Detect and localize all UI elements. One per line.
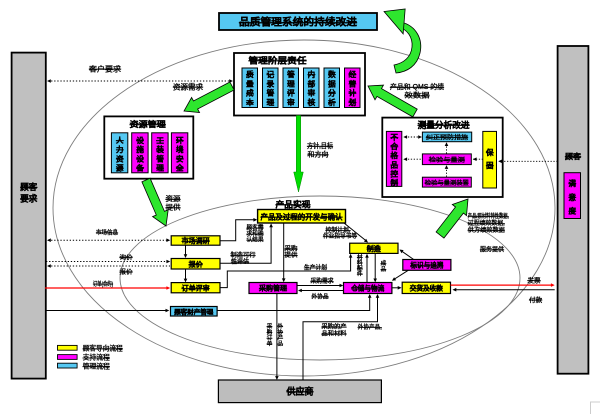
svg-text:经: 经 xyxy=(349,69,357,79)
svg-text:采购: 采购 xyxy=(285,245,298,253)
svg-text:产: 产 xyxy=(277,334,283,342)
svg-text:格: 格 xyxy=(391,150,399,160)
svg-text:交货及收款: 交货及收款 xyxy=(410,283,444,292)
svg-text:人: 人 xyxy=(116,136,124,145)
svg-text:分: 分 xyxy=(328,88,336,98)
svg-text:划: 划 xyxy=(349,97,357,107)
svg-text:顾客: 顾客 xyxy=(565,151,582,161)
svg-text:效数据: 效数据 xyxy=(405,91,430,100)
svg-text:单: 单 xyxy=(267,339,273,347)
svg-text:固: 固 xyxy=(486,161,494,170)
svg-text:制: 制 xyxy=(391,178,399,188)
svg-text:过程绩效数据,: 过程绩效数据, xyxy=(468,219,505,227)
svg-text:部: 部 xyxy=(308,78,316,88)
svg-text:评: 评 xyxy=(287,89,295,98)
svg-text:据: 据 xyxy=(328,78,336,88)
svg-text:意: 意 xyxy=(569,192,577,202)
svg-text:提供: 提供 xyxy=(285,251,298,259)
svg-text:资源需求: 资源需求 xyxy=(173,83,203,92)
svg-text:求和确: 求和确 xyxy=(247,230,264,238)
svg-text:安: 安 xyxy=(176,153,184,163)
svg-text:析: 析 xyxy=(328,97,336,107)
svg-text:顾客需: 顾客需 xyxy=(247,224,264,232)
svg-text:作业指导书等: 作业指导书等 xyxy=(323,232,357,240)
svg-text:境: 境 xyxy=(176,144,184,154)
svg-text:设: 设 xyxy=(136,135,144,145)
svg-text:外协产品,: 外协产品, xyxy=(358,323,382,331)
svg-text:报价: 报价 xyxy=(120,268,133,276)
svg-text:理: 理 xyxy=(156,164,164,173)
svg-text:件: 件 xyxy=(357,270,363,278)
svg-text:理: 理 xyxy=(287,79,295,88)
svg-text:记: 记 xyxy=(267,69,275,79)
svg-text:供方绩效数据: 供方绩效数据 xyxy=(468,226,505,234)
svg-text:源: 源 xyxy=(116,163,124,173)
svg-text:顾客财产管理: 顾客财产管理 xyxy=(174,307,214,316)
svg-text:仓储与物流: 仓储与物流 xyxy=(350,284,384,293)
svg-text:数: 数 xyxy=(328,69,336,79)
svg-text:度: 度 xyxy=(569,206,577,216)
svg-text:审: 审 xyxy=(287,97,295,107)
svg-text:纠正预防措施: 纠正预防措施 xyxy=(426,133,468,141)
svg-text:资: 资 xyxy=(116,153,124,163)
svg-text:管: 管 xyxy=(156,153,164,163)
svg-text:检验与量测: 检验与量测 xyxy=(429,156,465,164)
svg-text:控: 控 xyxy=(391,168,399,178)
svg-text:产品和 QMS 的绩: 产品和 QMS 的绩 xyxy=(390,82,444,91)
svg-text:外: 外 xyxy=(277,322,283,330)
svg-text:发票: 发票 xyxy=(528,275,542,284)
svg-text:设: 设 xyxy=(136,153,144,163)
svg-text:制造可行: 制造可行 xyxy=(231,251,256,259)
svg-text:营: 营 xyxy=(349,78,357,88)
svg-text:供应商: 供应商 xyxy=(286,386,314,397)
svg-text:采购需求: 采购需求 xyxy=(311,277,334,285)
svg-text:本: 本 xyxy=(245,97,254,107)
svg-text:产品实现: 产品实现 xyxy=(276,200,311,210)
svg-text:产品/原材料特性数据,: 产品/原材料特性数据, xyxy=(468,212,509,220)
svg-text:不: 不 xyxy=(391,133,399,142)
svg-text:付款: 付款 xyxy=(529,295,543,304)
svg-text:市场信息: 市场信息 xyxy=(96,229,118,237)
svg-text:和方向: 和方向 xyxy=(308,150,329,159)
svg-text:要求: 要求 xyxy=(20,194,37,204)
svg-text:内: 内 xyxy=(308,69,316,79)
svg-text:支持流程: 支持流程 xyxy=(83,353,110,362)
svg-text:录: 录 xyxy=(267,79,275,88)
svg-text:顾客: 顾客 xyxy=(20,182,37,192)
svg-text:购: 购 xyxy=(267,328,273,336)
svg-text:标识与追溯: 标识与追溯 xyxy=(409,261,443,270)
svg-text:满: 满 xyxy=(569,178,577,188)
svg-text:理: 理 xyxy=(267,98,275,107)
svg-text:客户要求: 客户要求 xyxy=(89,64,122,74)
svg-text:装: 装 xyxy=(155,144,164,154)
svg-text:方针,目标: 方针,目标 xyxy=(307,141,333,150)
svg-text:合: 合 xyxy=(391,141,399,151)
svg-text:全: 全 xyxy=(175,163,184,173)
svg-text:测量分析改进: 测量分析改进 xyxy=(418,120,470,130)
svg-text:检验与量测装置: 检验与量测装置 xyxy=(425,179,469,187)
svg-text:制造: 制造 xyxy=(367,244,382,253)
svg-text:询价: 询价 xyxy=(120,253,133,261)
svg-text:管理阶层责任: 管理阶层责任 xyxy=(249,56,308,66)
svg-text:订单(合约): 订单(合约) xyxy=(93,280,113,288)
svg-text:资源管理: 资源管理 xyxy=(130,119,166,129)
svg-text:性评估: 性评估 xyxy=(231,258,249,266)
svg-text:资源: 资源 xyxy=(166,194,181,203)
svg-text:成: 成 xyxy=(381,259,387,267)
svg-text:服务提供: 服务提供 xyxy=(480,246,504,254)
svg-text:品质管理系统的持续改进: 品质管理系统的持续改进 xyxy=(239,16,357,29)
svg-text:协: 协 xyxy=(277,328,283,336)
svg-text:施: 施 xyxy=(136,144,144,154)
svg-text:核: 核 xyxy=(308,97,316,107)
svg-text:采购的产: 采购的产 xyxy=(322,323,347,331)
svg-text:计: 计 xyxy=(349,88,357,98)
svg-text:采购管理: 采购管理 xyxy=(258,284,287,293)
svg-text:提供: 提供 xyxy=(166,203,181,212)
svg-text:成: 成 xyxy=(246,88,254,98)
svg-text:管: 管 xyxy=(267,88,275,98)
svg-text:品: 品 xyxy=(277,340,283,347)
svg-text:品和材料: 品和材料 xyxy=(322,330,347,338)
svg-text:管理流程: 管理流程 xyxy=(83,361,110,370)
svg-text:产品及过程的开发与确认: 产品及过程的开发与确认 xyxy=(261,212,343,222)
svg-text:量: 量 xyxy=(246,78,254,88)
svg-text:认结果: 认结果 xyxy=(247,236,264,244)
svg-text:品: 品 xyxy=(381,266,387,273)
svg-text:生产计划: 生产计划 xyxy=(304,263,327,271)
svg-text:报价: 报价 xyxy=(189,259,204,268)
svg-text:顾客导向流程: 顾客导向流程 xyxy=(83,344,123,353)
svg-text:采: 采 xyxy=(267,322,273,330)
svg-text:品: 品 xyxy=(391,160,399,169)
svg-text:审: 审 xyxy=(308,88,316,98)
svg-text:管: 管 xyxy=(287,69,295,79)
svg-text:订单评审: 订单评审 xyxy=(182,283,210,292)
svg-text:工: 工 xyxy=(156,136,164,145)
svg-text:市场调研: 市场调研 xyxy=(182,236,210,245)
svg-text:外协品: 外协品 xyxy=(312,292,329,300)
svg-text:环: 环 xyxy=(176,136,184,145)
svg-text:控制计划,: 控制计划, xyxy=(326,226,351,234)
svg-text:保: 保 xyxy=(485,147,494,157)
svg-text:质: 质 xyxy=(246,69,254,79)
svg-text:备: 备 xyxy=(135,163,144,173)
svg-text:力: 力 xyxy=(116,144,124,154)
